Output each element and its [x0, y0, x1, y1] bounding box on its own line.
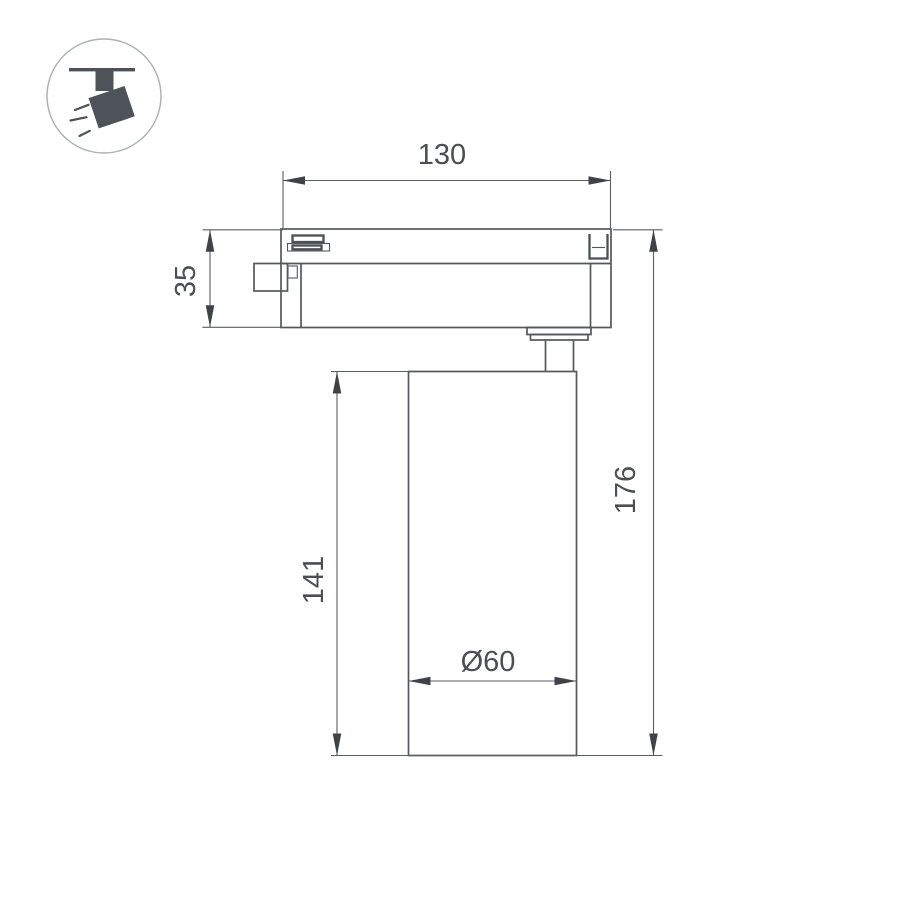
adapter-knob-step — [288, 266, 297, 278]
drawing-canvas: 130 35 141 176 Ø60 — [0, 0, 900, 900]
arrow-up — [206, 230, 215, 252]
contact-plate-upper — [293, 236, 324, 243]
icon-track-bar — [69, 68, 135, 71]
dim-track-width-extensions — [283, 171, 611, 229]
contact-plate-lower-inner — [293, 246, 322, 250]
lamp-cylinder — [409, 372, 577, 756]
track-spotlight-icon — [47, 39, 161, 153]
joint-column — [546, 340, 574, 372]
dim-body-height: 141 — [298, 372, 409, 756]
arrow-left — [283, 176, 305, 185]
dimension-drawing: 130 35 141 176 Ø60 — [0, 0, 900, 900]
dim-adapter-height: 35 — [170, 230, 283, 327]
icon-stem — [96, 71, 114, 91]
joint-plate-lower — [531, 335, 589, 341]
track-adapter — [254, 229, 611, 328]
swivel-joint — [527, 328, 591, 372]
dim-body-height-label: 141 — [298, 556, 330, 604]
arrow-down — [649, 734, 658, 756]
adapter-outline — [281, 229, 611, 328]
arrow-left — [409, 677, 431, 686]
dim-body-diameter: Ø60 — [409, 646, 577, 685]
adapter-clip — [590, 234, 608, 259]
dim-adapter-height-label: 35 — [170, 265, 202, 297]
dim-track-width: 130 — [283, 139, 611, 229]
dim-body-diameter-label: Ø60 — [461, 646, 516, 678]
dim-track-width-label: 130 — [418, 139, 466, 171]
dim-total-height-label: 176 — [610, 466, 642, 514]
arrow-right — [589, 176, 611, 185]
dim-adapter-height-extensions — [203, 230, 284, 327]
arrow-up — [649, 230, 658, 252]
arrow-down — [206, 305, 215, 327]
joint-plate-upper — [527, 328, 591, 335]
adapter-knob — [254, 264, 288, 292]
arrow-up — [333, 372, 342, 394]
lamp-body — [409, 372, 577, 756]
arrow-right — [555, 677, 577, 686]
arrow-down — [333, 734, 342, 756]
